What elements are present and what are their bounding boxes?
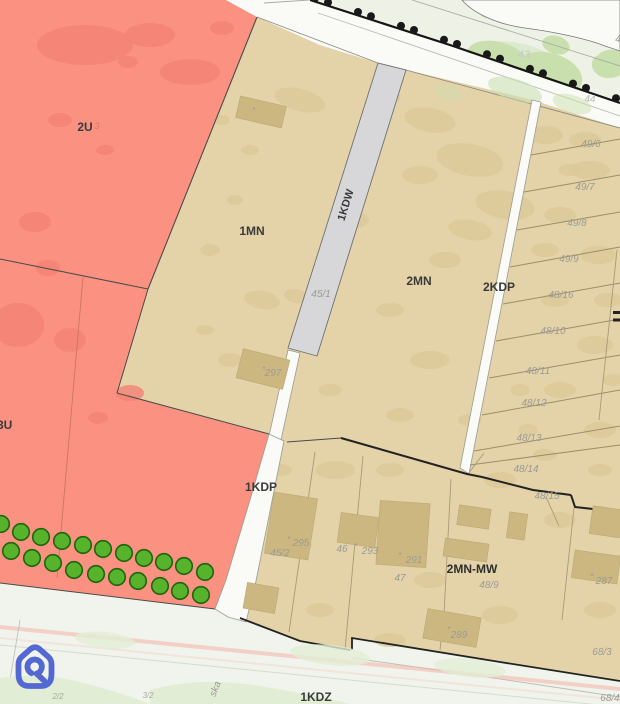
svg-text:2/2: 2/2 bbox=[51, 692, 64, 701]
svg-text:46: 46 bbox=[336, 544, 348, 555]
svg-text:49/9: 49/9 bbox=[559, 254, 579, 265]
svg-text:*: * bbox=[287, 535, 290, 544]
svg-text:48/10: 48/10 bbox=[540, 326, 565, 337]
svg-text:2KDP: 2KDP bbox=[483, 280, 515, 294]
svg-text:2MN: 2MN bbox=[406, 274, 431, 288]
svg-text:44: 44 bbox=[584, 94, 596, 105]
svg-text:68/3: 68/3 bbox=[592, 647, 612, 658]
svg-text:*: * bbox=[398, 551, 401, 560]
svg-text:49/6: 49/6 bbox=[581, 139, 601, 150]
svg-text:43: 43 bbox=[518, 49, 531, 61]
svg-text:48/13: 48/13 bbox=[516, 433, 541, 444]
svg-text:295: 295 bbox=[292, 538, 310, 549]
svg-text:47: 47 bbox=[394, 573, 406, 584]
svg-text:1KDZ: 1KDZ bbox=[300, 690, 331, 704]
svg-text:*: * bbox=[262, 365, 265, 374]
svg-text:4: 4 bbox=[615, 34, 620, 45]
svg-text:1MN: 1MN bbox=[239, 224, 264, 238]
svg-text:48/16: 48/16 bbox=[548, 290, 573, 301]
svg-text:297: 297 bbox=[264, 368, 282, 379]
svg-text:1KDP: 1KDP bbox=[245, 480, 277, 494]
svg-text:3U: 3U bbox=[0, 418, 12, 432]
svg-text:49/8: 49/8 bbox=[567, 218, 587, 229]
svg-text:48/15: 48/15 bbox=[534, 491, 559, 502]
svg-text:45/2: 45/2 bbox=[270, 548, 290, 559]
svg-text:*: * bbox=[252, 106, 255, 115]
svg-text:2MN-MW: 2MN-MW bbox=[447, 562, 498, 576]
svg-text:48/11: 48/11 bbox=[526, 366, 550, 377]
svg-text:287: 287 bbox=[595, 576, 613, 587]
svg-text:45/1: 45/1 bbox=[311, 289, 330, 300]
svg-text:*: * bbox=[590, 572, 593, 581]
svg-text:2U: 2U bbox=[77, 120, 92, 134]
svg-text:68/4: 68/4 bbox=[600, 693, 620, 704]
svg-text:49/7: 49/7 bbox=[575, 182, 595, 193]
svg-text:48/12: 48/12 bbox=[521, 398, 546, 409]
svg-text:*: * bbox=[354, 542, 357, 551]
svg-text:293: 293 bbox=[361, 546, 379, 557]
svg-text:*: * bbox=[447, 625, 450, 634]
svg-text:3: 3 bbox=[94, 121, 99, 131]
svg-text:3/2: 3/2 bbox=[142, 691, 154, 700]
svg-text:48/9: 48/9 bbox=[479, 580, 499, 591]
svg-text:291: 291 bbox=[405, 555, 423, 566]
svg-text:289: 289 bbox=[450, 630, 468, 641]
svg-text:48/14: 48/14 bbox=[513, 464, 538, 475]
